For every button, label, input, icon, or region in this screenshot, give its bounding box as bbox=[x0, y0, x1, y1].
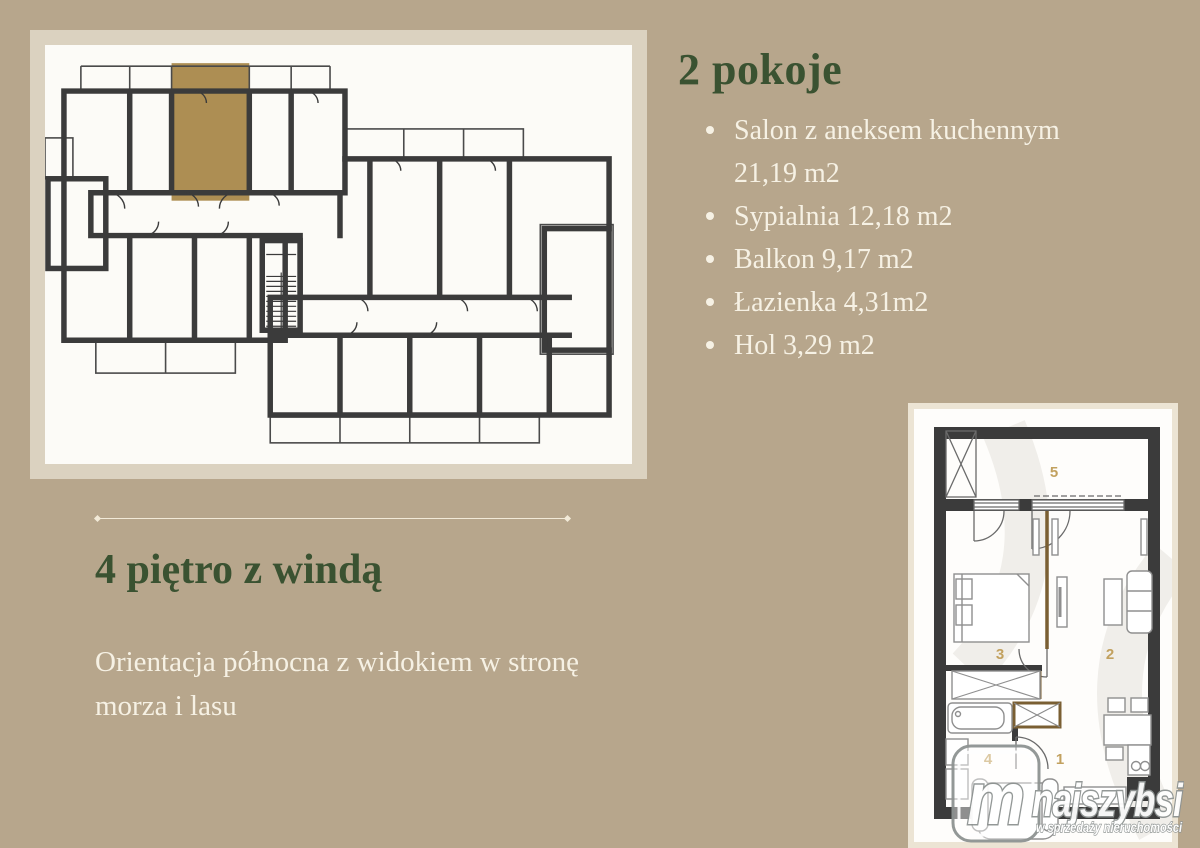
sofa bbox=[1127, 571, 1152, 633]
chair bbox=[1108, 698, 1125, 712]
room-list-item-sypialnia: Sypialnia 12,18 m2 bbox=[706, 195, 1066, 238]
building-floor-plan-panel bbox=[30, 30, 647, 479]
floor-heading: 4 piętro z windą bbox=[95, 546, 382, 594]
radiator bbox=[1033, 519, 1039, 555]
agency-logo: m najszybsi w sprzedaży nieruchomości bbox=[944, 740, 1184, 848]
real-estate-flyer: 2 pokoje Salon z aneksem kuchennym 21,19… bbox=[0, 0, 1200, 848]
orientation-description: Orientacja północna z widokiem w stronę … bbox=[95, 640, 655, 728]
room-number-3: 3 bbox=[996, 646, 1004, 663]
logo-tagline: w sprzedaży nieruchomości bbox=[1036, 819, 1183, 835]
radiator bbox=[1052, 519, 1058, 555]
unit-title: 2 pokoje bbox=[678, 44, 1148, 95]
room-list-item-lazienka: Łazienka 4,31m2 bbox=[706, 281, 1066, 324]
coffee-table bbox=[1104, 579, 1122, 625]
room-list: Salon z aneksem kuchennym 21,19 m2 Sypia… bbox=[678, 109, 1066, 367]
radiator bbox=[1141, 519, 1147, 555]
building-floor-plan bbox=[45, 45, 632, 464]
highlighted-unit bbox=[172, 63, 250, 201]
room-list-item-hol: Hol 3,29 m2 bbox=[706, 324, 1066, 367]
room-number-2: 2 bbox=[1106, 646, 1114, 663]
logo-monogram: m bbox=[967, 757, 1025, 840]
divider-line bbox=[97, 518, 568, 519]
unit-info: 2 pokoje Salon z aneksem kuchennym 21,19… bbox=[678, 44, 1148, 367]
chair bbox=[1131, 698, 1148, 712]
logo-monogram-icon: m bbox=[953, 746, 1039, 841]
room-number-5: 5 bbox=[1050, 464, 1058, 481]
room-list-item-balkon: Balkon 9,17 m2 bbox=[706, 238, 1066, 281]
room-list-item-salon: Salon z aneksem kuchennym 21,19 m2 bbox=[706, 109, 1066, 195]
